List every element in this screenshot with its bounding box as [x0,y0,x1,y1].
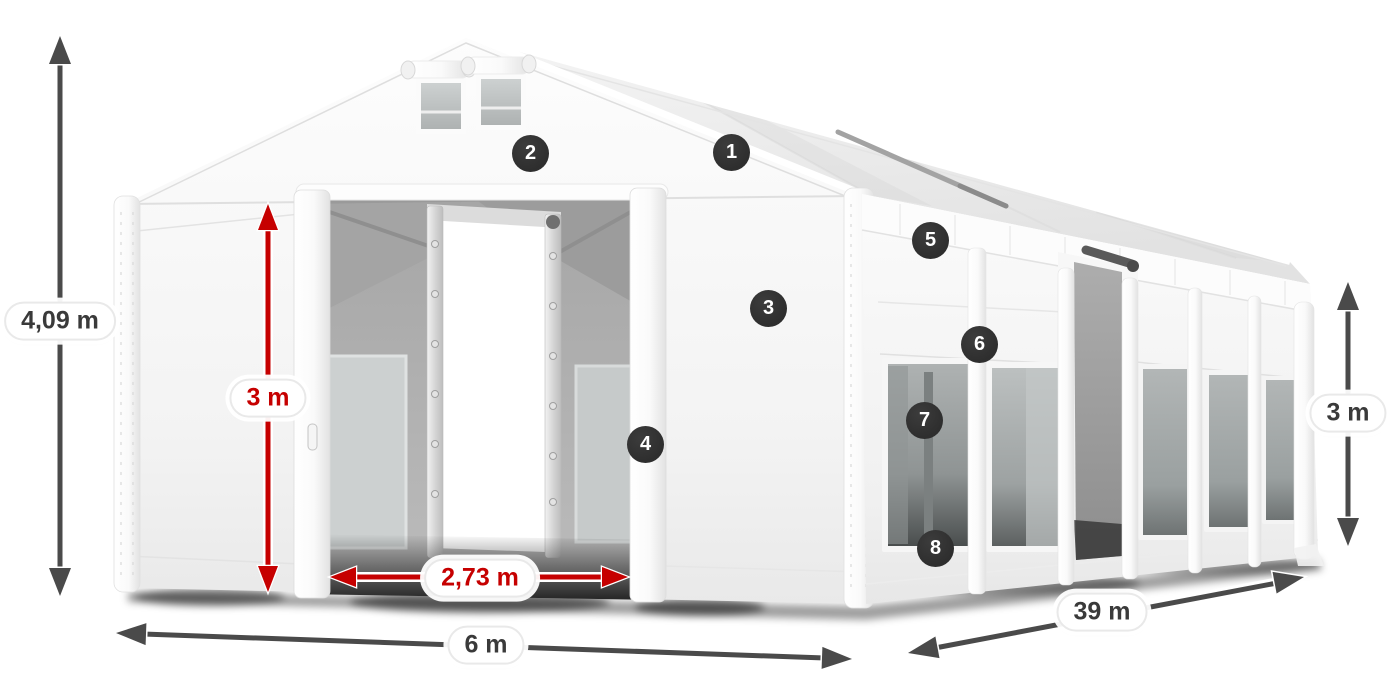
inner-portal-left-pole [427,206,443,558]
vent-roll-left [406,61,470,78]
side-window-3 [1138,364,1192,540]
dimension-label-door-width: 2,73 m [424,559,536,598]
dimension-label-door-height: 3 m [229,379,306,418]
feature-badge-6[interactable]: 6 [961,326,998,363]
feature-badge-4[interactable]: 4 [627,426,664,463]
dimension-label-width: 6 m [447,626,524,665]
interior-window-left [318,356,406,548]
feature-badge-8[interactable]: 8 [917,530,954,567]
dimension-label-length: 39 m [1057,593,1148,632]
product-diagram: 4,09 m 3 m 2,73 m 6 m 39 m 3 m 1 2 3 4 5… [0,0,1400,700]
dimension-label-side-height: 3 m [1309,394,1386,433]
front-door-opening [302,192,660,600]
feature-badge-5[interactable]: 5 [912,222,949,259]
feature-badge-2[interactable]: 2 [512,135,549,172]
side-window-2 [986,362,1064,552]
feature-badge-7[interactable]: 7 [906,402,943,439]
door-column-right [630,188,666,602]
door-handle [308,424,317,450]
side-window-4 [1204,370,1254,532]
inner-portal-right-pole [545,214,561,558]
side-window-1 [882,358,974,552]
vent-roll-right [466,57,530,74]
feature-badge-3[interactable]: 3 [750,290,787,327]
feature-badge-1[interactable]: 1 [713,134,750,171]
tent-illustration [0,0,1400,700]
dimension-label-total-height: 4,09 m [4,302,116,341]
tent [114,34,1324,608]
see-through-opening [433,214,545,552]
